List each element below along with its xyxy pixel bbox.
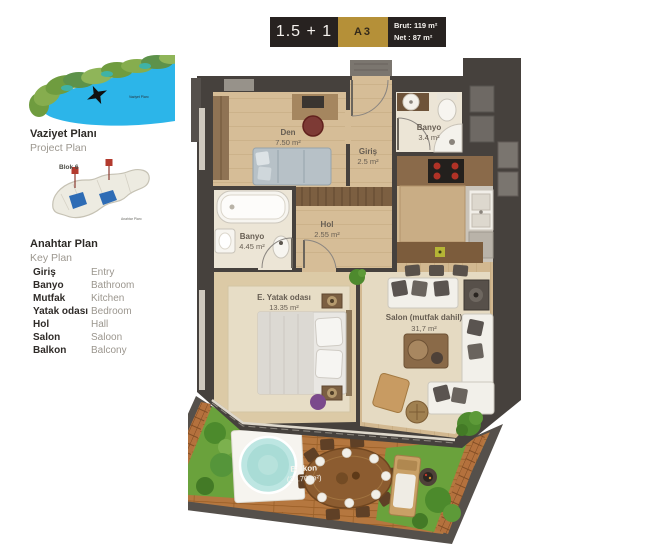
legend-row: MutfakKitchen: [33, 292, 134, 305]
headboard: [346, 310, 352, 396]
pouf: [310, 394, 326, 410]
wall-niche: [224, 79, 254, 91]
legend-row: Yatak odasıBedroom: [33, 305, 134, 318]
key-plan-title-en: Key Plan: [30, 252, 98, 265]
project-plan-map: Vaziyet Planı: [25, 55, 175, 127]
balkon-label: Balkon (21.70 m²): [286, 463, 322, 484]
legend-tr: Giriş: [33, 267, 91, 278]
project-plan-caption: Vaziyet Planı Project Plan: [30, 128, 97, 155]
bathtub: [217, 191, 289, 223]
toilet: [438, 99, 456, 121]
legend-tr: Balkon: [33, 345, 91, 356]
fire-pit: [419, 468, 437, 486]
legend-en: Bedroom: [91, 306, 132, 317]
legend-tr: Hol: [33, 319, 91, 330]
legend-en: Kitchen: [91, 293, 124, 304]
room-area: 3.4 m²: [418, 133, 440, 142]
pillow: [315, 317, 343, 347]
entry-porch: [350, 60, 392, 76]
door-opening: [302, 266, 336, 272]
desk-chair: [303, 116, 323, 136]
kitchen-island: [400, 186, 465, 242]
nightstand: [322, 386, 342, 400]
room-area: 7.50 m²: [275, 138, 301, 147]
unit-code-label: A3: [354, 26, 372, 38]
stove: [428, 159, 464, 183]
side-table: [406, 401, 428, 423]
legend-en: Bathroom: [91, 280, 134, 291]
legend-row: BanyoBathroom: [33, 279, 134, 292]
shower-drain: [449, 139, 455, 145]
legend-en: Balcony: [91, 345, 127, 356]
legend-tr: Yatak odası: [33, 306, 91, 317]
map-inline-label: Vaziyet Planı: [129, 95, 149, 99]
legend-en: Entry: [91, 267, 114, 278]
toilet: [273, 236, 289, 258]
room-banyo-master: Banyo 4.45 m²: [214, 190, 292, 270]
den-door-opening: [345, 110, 351, 144]
floor-plan: Balkon (21.70 m²) Den: [188, 55, 533, 546]
bed: [258, 310, 352, 396]
room-giris: Giriş 2.5 m²: [345, 76, 392, 188]
legend-row: HolHall: [33, 318, 134, 331]
gross-area-label: Brut: 119 m²: [394, 20, 437, 32]
nightstand: [322, 294, 342, 308]
room-legend: GirişEntry BanyoBathroom MutfakKitchen Y…: [33, 266, 134, 357]
room-area: 2.5 m²: [357, 157, 379, 166]
coffee-table: [404, 334, 448, 368]
project-plan-title-tr: Vaziyet Planı: [30, 128, 97, 142]
room-name: Banyo: [240, 232, 265, 241]
block-label: Blok 6: [59, 164, 79, 171]
legend-en: Saloon: [91, 332, 122, 343]
key-plan-title-tr: Anahtar Plan: [30, 238, 98, 252]
room-name: E. Yatak odası: [257, 293, 311, 302]
room-area: 13.35 m²: [269, 303, 299, 312]
unit-type-label: 1.5 + 1: [276, 23, 332, 41]
key-plan-caption: Anahtar Plan Key Plan: [30, 238, 98, 265]
pillow: [315, 349, 342, 378]
unit-area-badge: Brut: 119 m² Net : 87 m²: [388, 17, 446, 47]
net-area-label: Net : 87 m²: [394, 32, 432, 44]
room-area: 4.45 m²: [239, 242, 265, 251]
room-hol: Hol 2.55 m²: [296, 186, 392, 272]
room-area: 2.55 m²: [314, 230, 340, 239]
unit-code-badge: A3: [338, 17, 388, 47]
door-opening: [258, 264, 292, 270]
unit-header: 1.5 + 1 A3 Brut: 119 m² Net : 87 m²: [270, 17, 446, 47]
room-banyo-small: Banyo 3.4 m²: [396, 92, 462, 152]
room-name: Banyo: [417, 123, 442, 132]
tv-console: [464, 280, 489, 310]
room-name: Den: [280, 128, 295, 137]
keyplan-inline-label: Anahtar Planı: [121, 217, 142, 221]
unit-type-badge: 1.5 + 1: [270, 17, 338, 47]
window: [199, 290, 205, 390]
floorplan-page: 1.5 + 1 A3 Brut: 119 m² Net : 87 m²: [0, 0, 660, 546]
room-area: (21.70 m²): [287, 473, 323, 484]
entry-door-opening: [352, 76, 390, 82]
sofa-main: [388, 278, 458, 308]
legend-row: BalkonBalcony: [33, 344, 134, 357]
legend-tr: Mutfak: [33, 293, 91, 304]
room-area: 31,7 m²: [411, 324, 437, 333]
room-bedroom: E. Yatak odası 13.35 m²: [199, 272, 356, 424]
kitchen-sink: [469, 190, 493, 230]
legend-tr: Salon: [33, 332, 91, 343]
legend-tr: Banyo: [33, 280, 91, 291]
legend-row: SalonSaloon: [33, 331, 134, 344]
room-den: Den 7.50 m²: [199, 79, 346, 186]
legend-en: Hall: [91, 319, 108, 330]
legend-row: GirişEntry: [33, 266, 134, 279]
key-plan-map: Blok 6 Anahtar Planı: [25, 152, 175, 236]
window: [199, 108, 205, 170]
monitor: [302, 96, 324, 108]
bar-stools: [405, 264, 469, 276]
sofa: [253, 148, 331, 185]
room-name: Balkon: [290, 463, 317, 473]
room-name: Hol: [321, 220, 334, 229]
sun-lounger: [389, 455, 421, 517]
room-name: Salon (mutfak dahil): [386, 313, 463, 322]
room-name: Giriş: [359, 147, 378, 156]
